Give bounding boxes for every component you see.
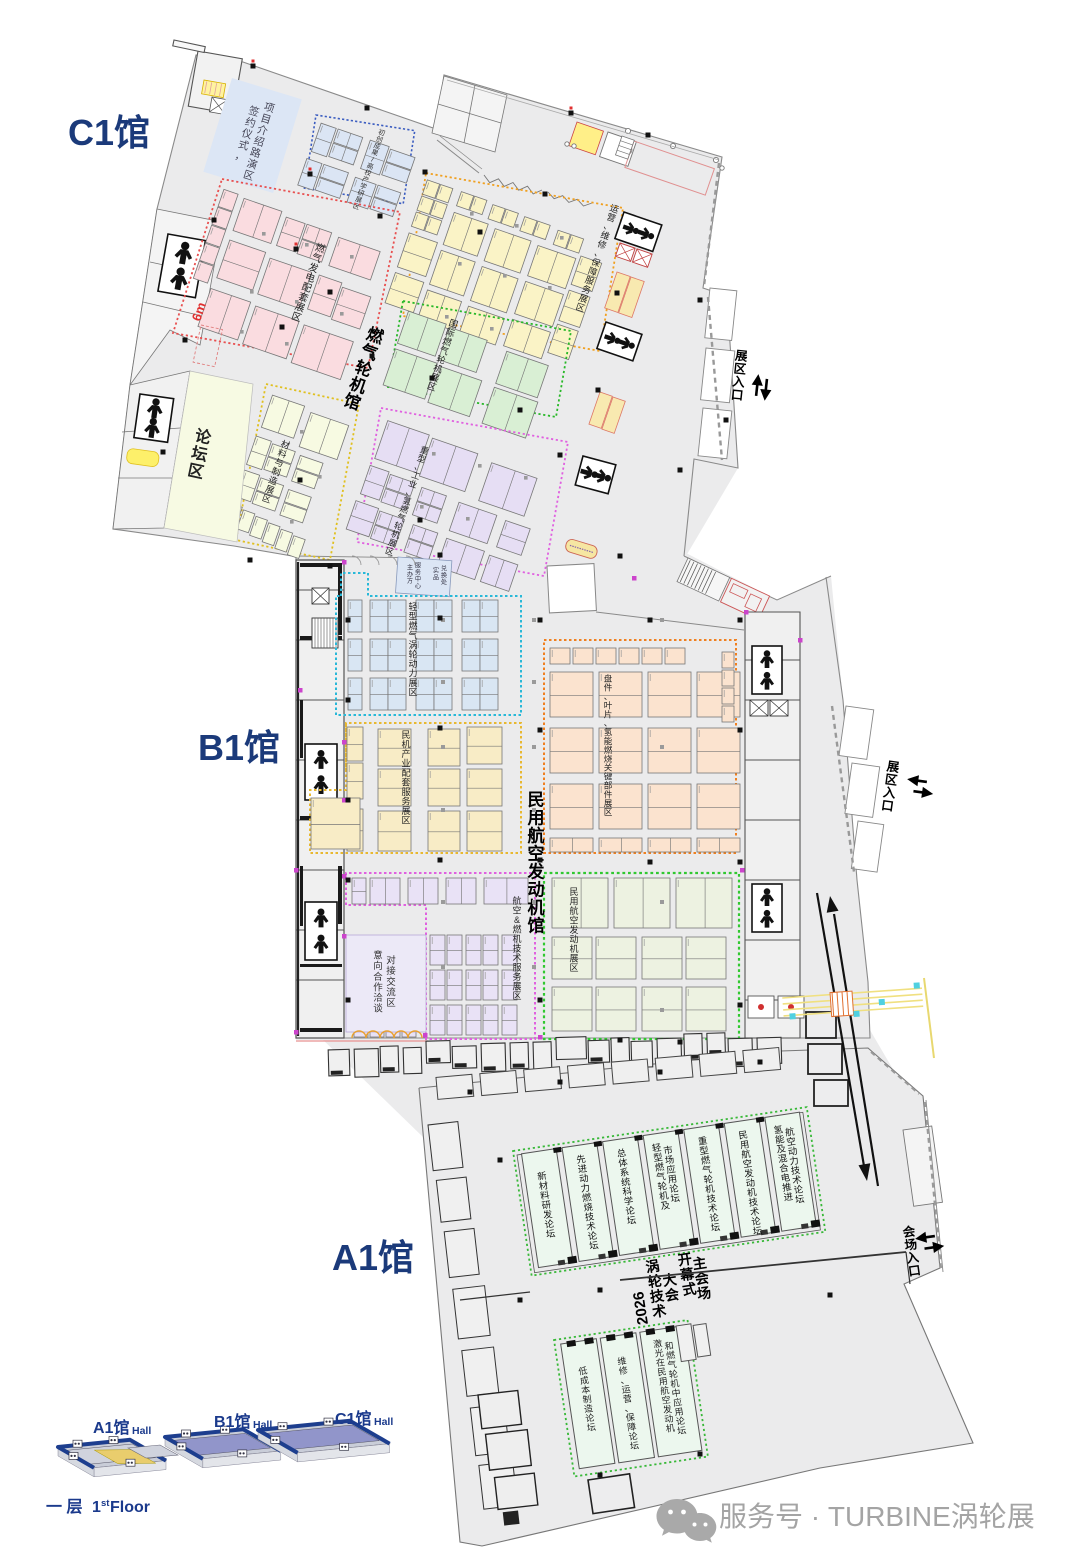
svg-text:民用航空发动机馆: 民用航空发动机馆: [527, 790, 546, 935]
svg-text:Hall: Hall: [253, 1419, 272, 1431]
svg-text:1: 1: [92, 1499, 101, 1516]
svg-text:对接交流区: 对接交流区: [386, 955, 396, 1009]
svg-text:服务号 · TURBINE涡轮展: 服务号 · TURBINE涡轮展: [719, 1501, 1035, 1532]
svg-text:st: st: [101, 1498, 110, 1509]
svg-text:一 层: 一 层: [46, 1498, 82, 1516]
svg-text:B1馆: B1馆: [198, 727, 280, 768]
svg-text:Hall: Hall: [132, 1425, 151, 1437]
svg-text:A1馆: A1馆: [93, 1418, 129, 1437]
svg-text:Floor: Floor: [110, 1499, 150, 1516]
svg-text:主办方: 主办方: [407, 564, 413, 586]
svg-text:航空&燃机技术服务展区: 航空&燃机技术服务展区: [512, 895, 521, 1001]
svg-text:盘件、叶片、氢能燃烧关键部件展区: 盘件、叶片、氢能燃烧关键部件展区: [604, 673, 613, 818]
svg-text:民机产业配套服务展区: 民机产业配套服务展区: [401, 730, 410, 826]
svg-text:A1馆: A1馆: [332, 1237, 414, 1278]
svg-text:兑换处: 兑换处: [441, 565, 447, 587]
svg-text:C1馆: C1馆: [335, 1409, 371, 1428]
svg-text:Hall: Hall: [374, 1416, 393, 1428]
svg-text:意向合作洽谈: 意向合作洽谈: [373, 950, 383, 1015]
svg-text:实品: 实品: [433, 567, 439, 582]
svg-text:民用航空发动机展区: 民用航空发动机展区: [569, 887, 578, 973]
svg-text:服务中心: 服务中心: [415, 563, 421, 590]
svg-text:轻型燃气涡轮动力展区: 轻型燃气涡轮动力展区: [408, 601, 417, 698]
svg-text:B1馆: B1馆: [214, 1412, 250, 1431]
svg-text:C1馆: C1馆: [68, 112, 150, 153]
